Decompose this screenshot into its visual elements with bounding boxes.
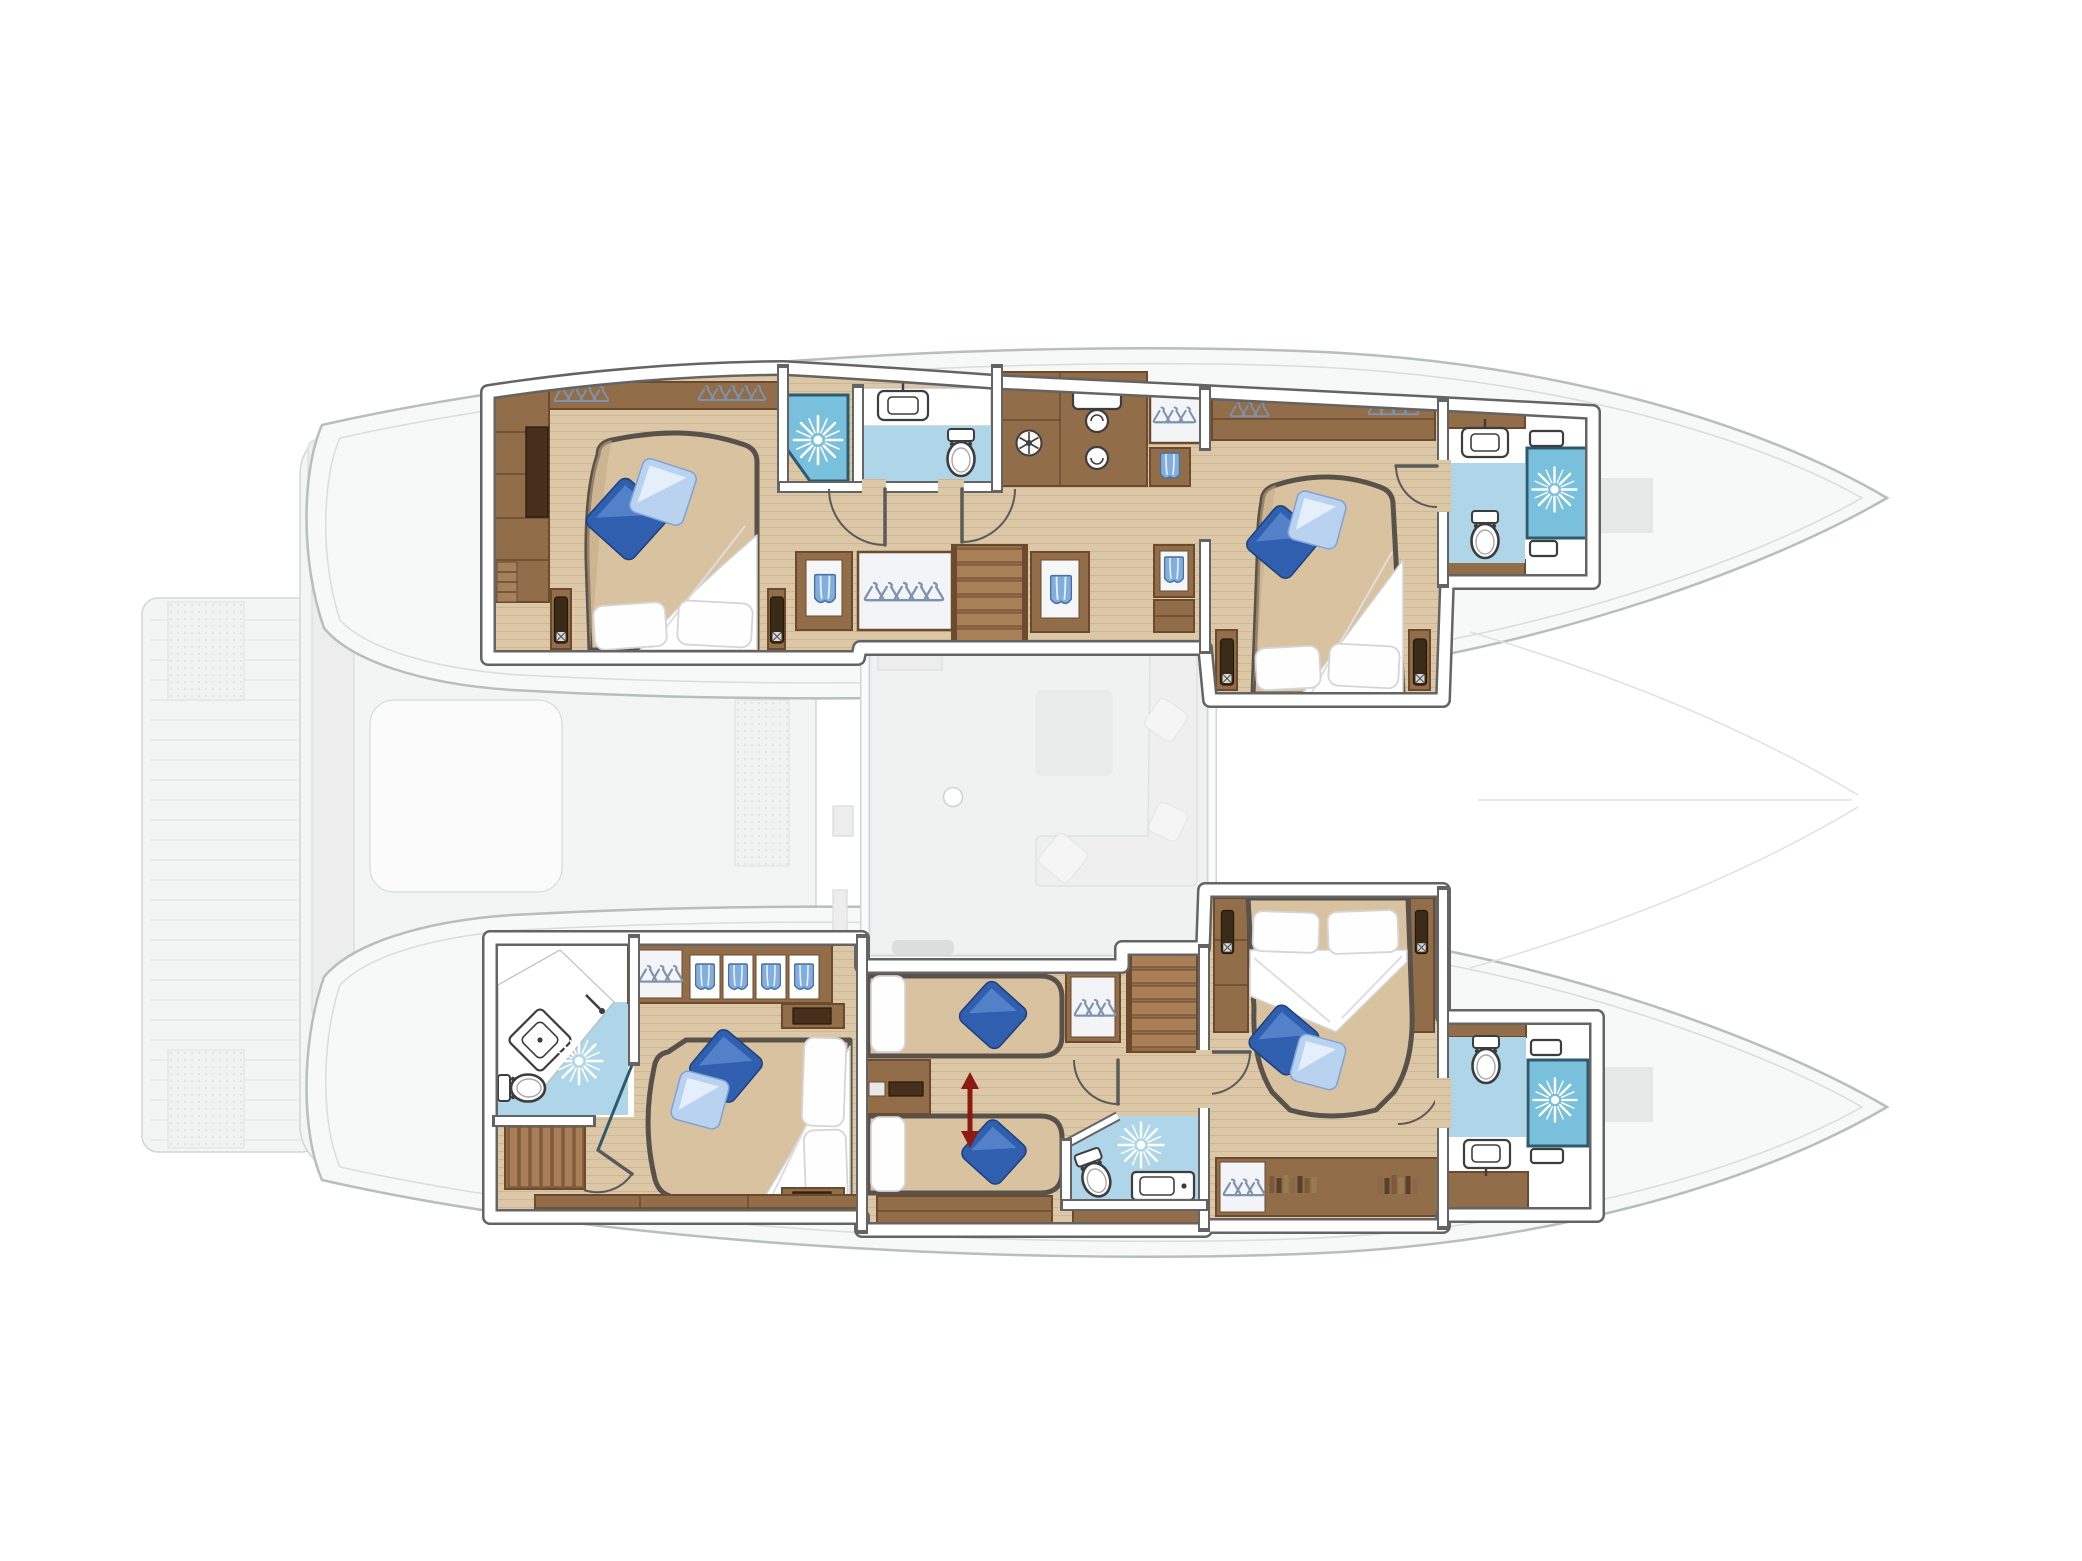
shower-head-icon xyxy=(1119,1123,1164,1168)
shower-head-icon xyxy=(1533,1078,1576,1121)
towel-icon xyxy=(1165,557,1184,582)
bed-single-bottom xyxy=(868,1116,1062,1193)
bed-double xyxy=(583,433,757,651)
toilet xyxy=(1472,511,1499,558)
toilet xyxy=(1473,1036,1500,1083)
door-gap xyxy=(1435,460,1451,512)
shower-tray xyxy=(1531,1040,1561,1055)
lamp xyxy=(1221,910,1233,953)
stairs-starboard-aft xyxy=(505,1125,585,1189)
lamp xyxy=(555,597,568,643)
shower-tray xyxy=(1530,541,1557,556)
bow-panel xyxy=(1597,1067,1653,1122)
bed-pillow xyxy=(1252,911,1319,953)
bed-pillow xyxy=(1328,643,1400,689)
bed-pillow xyxy=(801,1037,846,1126)
bed-pillow xyxy=(871,1117,905,1191)
fan-icon xyxy=(1017,431,1042,456)
bed-pillow xyxy=(593,602,668,651)
bed-single-top xyxy=(868,976,1062,1056)
deck-grate xyxy=(168,602,244,700)
bed-double xyxy=(648,1027,850,1215)
lamp xyxy=(1221,639,1234,685)
toilet xyxy=(948,429,975,476)
mast-foot xyxy=(944,788,963,807)
door-gap xyxy=(1435,1078,1451,1128)
lamp xyxy=(1414,639,1427,685)
sink xyxy=(878,391,928,420)
bathroom-port-forward xyxy=(1440,408,1593,578)
towel-icon xyxy=(1051,576,1072,604)
towel-icon xyxy=(815,575,836,603)
shower-head-icon xyxy=(556,1038,602,1084)
shower-stall xyxy=(1527,448,1588,538)
stairs-port xyxy=(952,545,1027,653)
saloon-faded xyxy=(833,640,1212,960)
bed-pillow xyxy=(1327,910,1398,954)
cabin-starboard-aft xyxy=(498,943,858,1221)
bed-double xyxy=(1244,477,1403,694)
door-gap xyxy=(938,479,964,495)
bed-pillow xyxy=(1255,645,1321,690)
hull-port-interior xyxy=(488,368,1593,700)
side-counter xyxy=(833,806,853,836)
catamaran-floor-plan xyxy=(0,0,2082,1561)
saloon-table xyxy=(1035,690,1113,776)
swim-platform xyxy=(142,598,318,1152)
shower-stall xyxy=(1528,1060,1588,1146)
bathroom-port-mid xyxy=(787,383,993,485)
bed-double xyxy=(1246,898,1412,1116)
door-gap xyxy=(862,479,886,495)
shower-head-icon xyxy=(794,416,842,464)
bathroom-starboard-mid xyxy=(1066,1116,1203,1205)
washer-icon xyxy=(1086,447,1108,469)
shower-tray xyxy=(1530,431,1563,446)
cockpit-grate xyxy=(735,700,789,866)
cabinet-dark xyxy=(526,427,548,517)
sink xyxy=(1462,428,1508,457)
cockpit-table xyxy=(370,700,562,892)
bed-pillow xyxy=(871,976,905,1052)
bathroom-starboard-forward xyxy=(1447,1021,1593,1212)
shower-head-icon xyxy=(1533,468,1577,512)
bow-panel xyxy=(1597,478,1653,533)
deck-grate xyxy=(168,1050,244,1148)
door-mat xyxy=(892,940,954,955)
washer-icon xyxy=(1086,410,1108,432)
floor-plan-svg xyxy=(0,0,2082,1561)
bed-pillow xyxy=(677,600,753,648)
lamp xyxy=(771,597,784,643)
door-gap xyxy=(1196,1050,1212,1108)
towel-icon xyxy=(1161,453,1180,478)
lamp xyxy=(1415,910,1427,953)
stairs-starboard xyxy=(1127,950,1201,1052)
toilet xyxy=(498,1075,545,1102)
shower-tray xyxy=(1531,1149,1563,1163)
